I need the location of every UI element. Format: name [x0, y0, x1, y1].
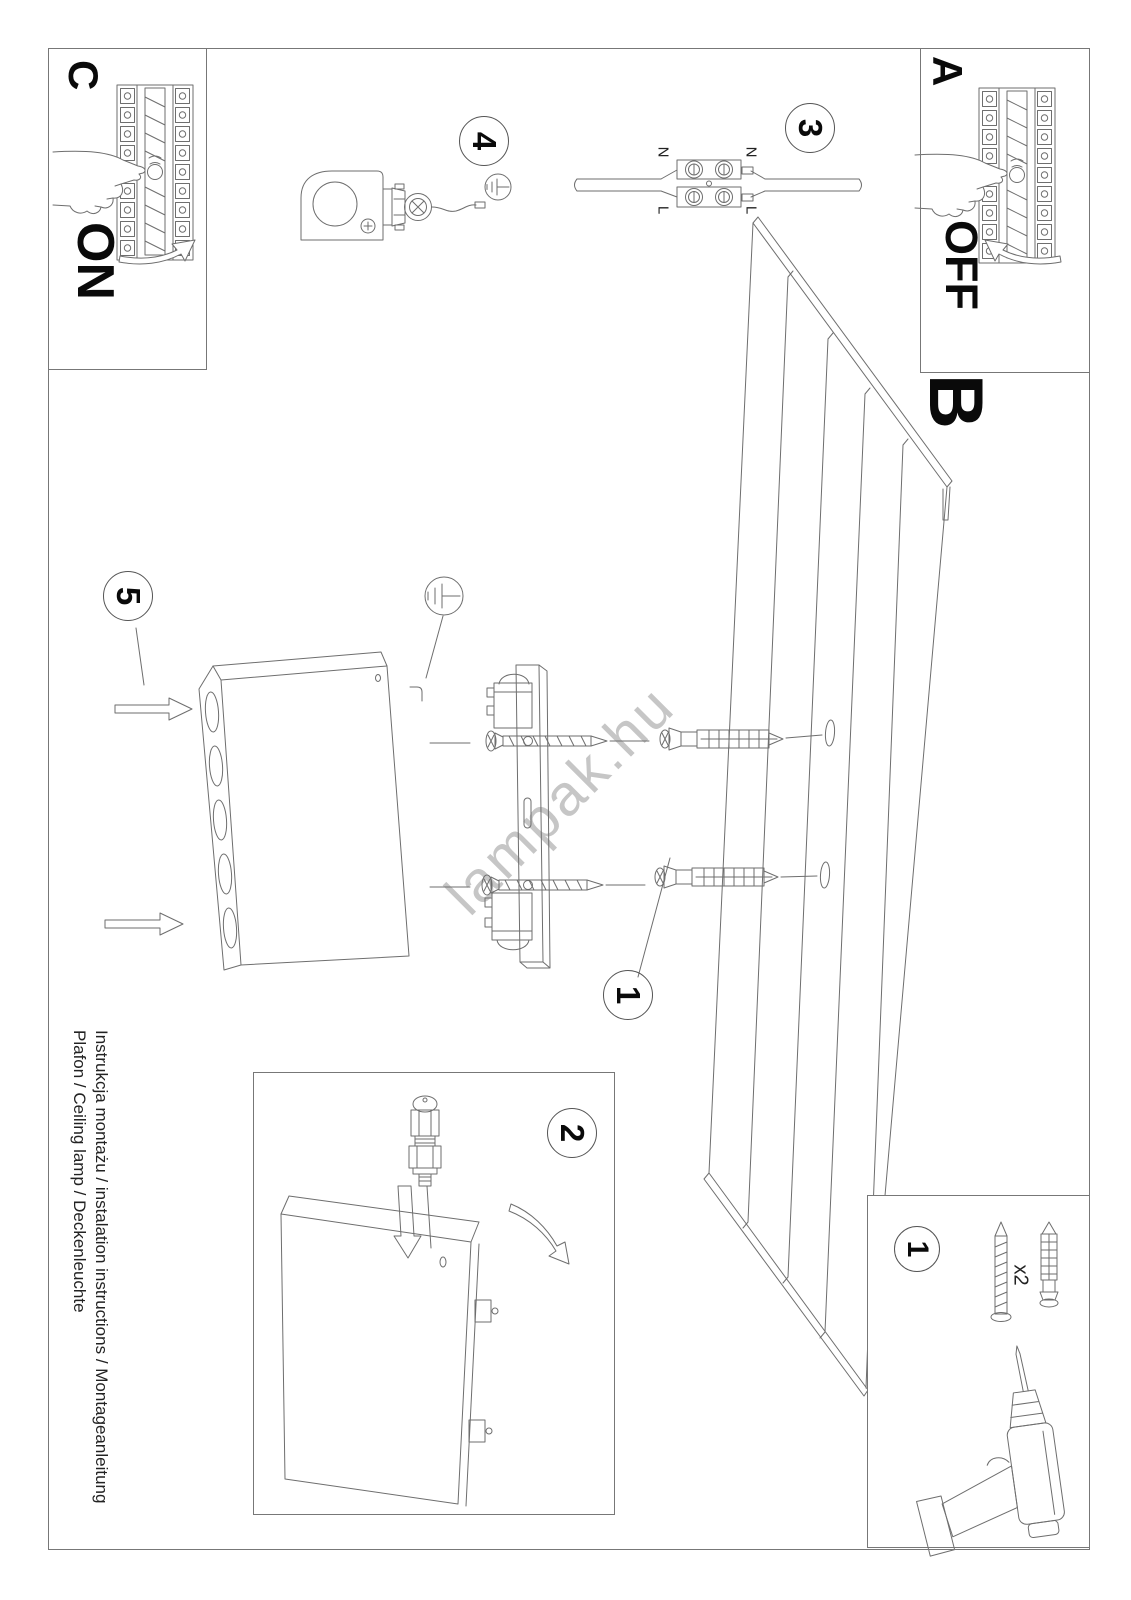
footer-title-line1: Instrukcja montażu / instalation instruc…	[91, 1030, 111, 1503]
wire-label-l: L	[743, 206, 760, 214]
step-badge-1: 1	[603, 970, 653, 1020]
label-a: A	[923, 56, 971, 86]
wire-label-n: N	[743, 147, 760, 158]
instruction-sheet: lampak.hu	[0, 0, 1131, 1600]
box-power-off	[920, 48, 1090, 373]
footer-title-line2: Plafon / Ceiling lamp / Deckenleuchte	[69, 1030, 89, 1313]
on-label: ON	[65, 222, 125, 300]
wire-label-n: N	[655, 147, 672, 158]
wire-label-l: L	[655, 206, 672, 214]
label-b: B	[912, 374, 999, 429]
off-label: OFF	[935, 220, 987, 310]
rotated-page: A B C OFF ON 3 4 5 1 2 1 N N L L x2 Inst…	[0, 0, 1131, 1600]
step-badge-4: 4	[459, 116, 509, 166]
parts-quantity-label: x2	[1009, 1264, 1032, 1285]
parts-badge-1: 1	[894, 1226, 940, 1272]
label-c: C	[59, 60, 107, 90]
step-badge-3: 3	[785, 103, 835, 153]
box-power-on	[48, 48, 207, 370]
step-badge-5: 5	[103, 571, 153, 621]
step-badge-2: 2	[547, 1108, 597, 1158]
